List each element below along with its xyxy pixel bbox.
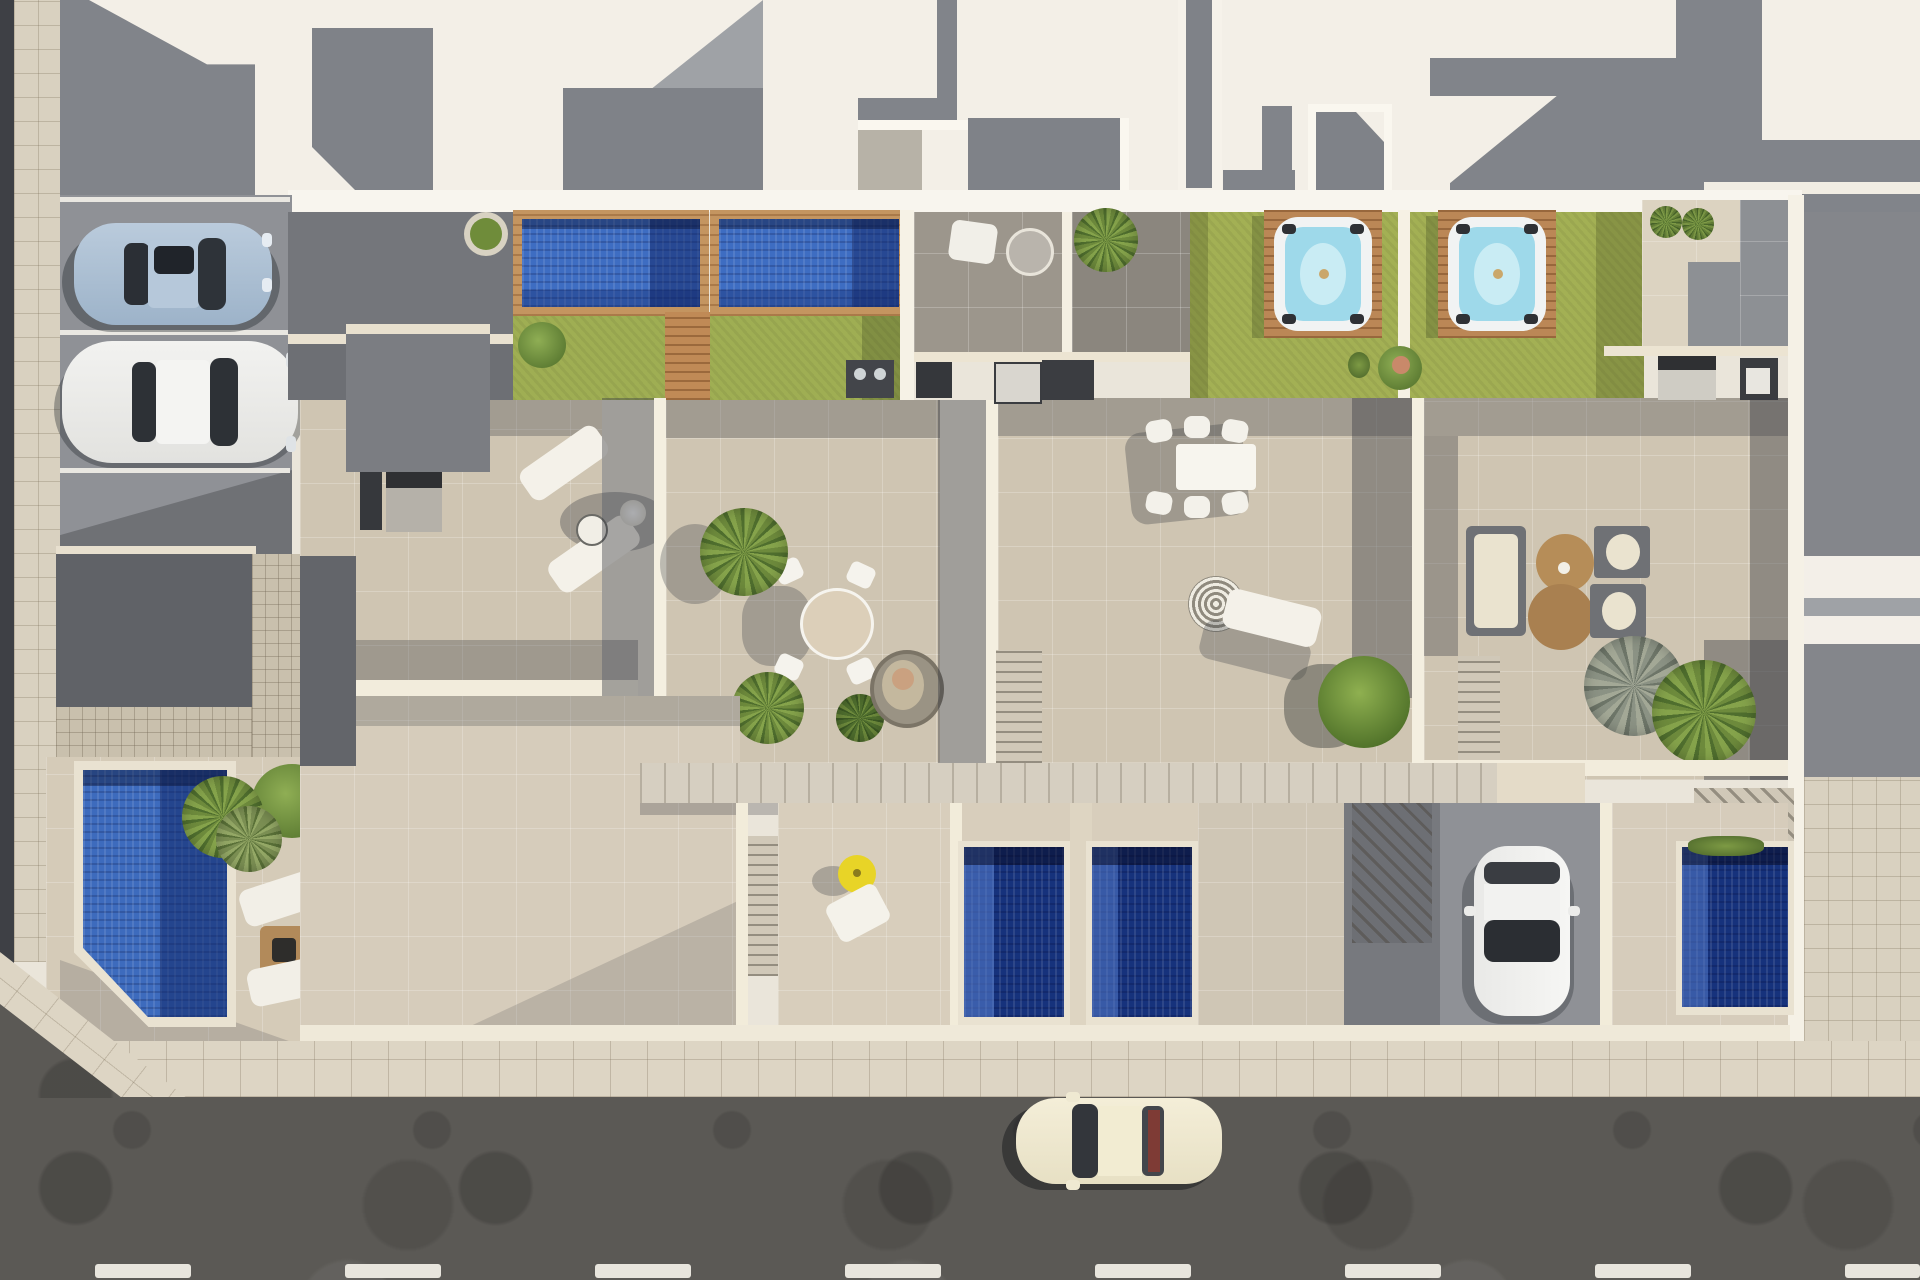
u3-chair-3 — [1220, 418, 1249, 444]
roof-pool-1-deep-2 — [522, 290, 700, 307]
shadow-u4-left — [1424, 436, 1458, 656]
building-north-wall — [288, 190, 1802, 212]
car-blue-windshield — [198, 238, 226, 310]
roof-pool-2-deep-2 — [719, 290, 899, 307]
car-road-roof — [1098, 1106, 1142, 1176]
shadow-u3-east — [1352, 398, 1414, 698]
street-edge-left — [0, 0, 14, 980]
wall-u3-mid — [1062, 212, 1072, 362]
egg-chair-person — [892, 668, 914, 690]
lane-dash-7 — [1595, 1264, 1691, 1278]
u3-round-daybed — [1006, 228, 1054, 276]
car-drive-mirror-2 — [1568, 906, 1580, 916]
u3-plant — [1318, 656, 1410, 748]
u3-kitchen-counter-white — [994, 362, 1042, 404]
car-white-roof — [156, 360, 210, 444]
u4-court-step-shadow — [1688, 262, 1740, 350]
u3-lawn-shadow — [1190, 212, 1208, 400]
u1-lawn-bush — [518, 322, 566, 368]
pool-3-edge-shadow — [1092, 847, 1192, 865]
cobble-path-h — [56, 707, 254, 759]
u1-planter-green — [470, 218, 502, 250]
sidewalk-bottom — [92, 1041, 1920, 1097]
car-drive-windshield — [1484, 920, 1560, 962]
coffee-cup — [1558, 562, 1570, 574]
lane-dash-5 — [1095, 1264, 1191, 1278]
u2-sink-bowl-1 — [854, 368, 866, 380]
hot-tub-2-headrest-2 — [1524, 224, 1538, 234]
car-white-windshield — [210, 358, 238, 446]
armchair-1-cushion — [1606, 534, 1640, 570]
u1-kitchen-cabinet — [360, 472, 382, 530]
top-passage-vert — [1186, 0, 1212, 188]
u4-kitchen-cabinet-door — [1746, 368, 1770, 394]
pool-4-plants — [1688, 836, 1764, 856]
car-road-rear-stripe — [1148, 1110, 1160, 1172]
car-road-mirror-1 — [1066, 1092, 1080, 1102]
parking-line-1 — [60, 197, 290, 202]
top-gray-vert-right — [1676, 0, 1704, 58]
patio-u3 — [1198, 803, 1344, 1045]
wall-p12 — [736, 803, 748, 1045]
top-gray-band-3 — [858, 98, 957, 122]
top-gray-band-right — [1430, 58, 1704, 96]
u3-chair-2 — [1184, 416, 1210, 438]
stairs-wood-u12 — [665, 312, 713, 400]
hot-tub-1-headrest-4 — [1350, 314, 1364, 324]
lane-dash-3 — [595, 1264, 691, 1278]
wall-p4 — [1600, 803, 1612, 1045]
car-blue-sunroof — [154, 246, 194, 274]
garage-roof — [56, 554, 254, 707]
lane-dash-1 — [95, 1264, 191, 1278]
u1-kitchen-grill-top — [386, 472, 442, 488]
car-road-mirror-2 — [1066, 1180, 1080, 1190]
pool-3-light-edge — [1092, 847, 1118, 1017]
u3-chair-4 — [1144, 490, 1173, 516]
hot-tub-2-headrest-1 — [1456, 224, 1470, 234]
top-house-shadow-r2 — [1262, 106, 1292, 195]
pool-2-edge-shadow — [964, 847, 1064, 865]
palm-u2-big — [700, 508, 788, 596]
u4-lawn-shadow — [1596, 212, 1644, 400]
palm-corner-2 — [216, 806, 282, 872]
hot-tub-1-headrest-3 — [1282, 314, 1296, 324]
stairs-p2 — [748, 836, 778, 976]
u4-court-gray — [1740, 200, 1790, 350]
wall-u34 — [1412, 398, 1424, 763]
yellow-table-stem — [853, 869, 861, 877]
boardwalk — [640, 763, 1500, 803]
u2-kitchen-sink — [846, 360, 894, 398]
car-drive-roof — [1484, 884, 1560, 920]
east-sidewalk — [1804, 777, 1920, 1045]
car-white-rear-window — [132, 362, 156, 442]
u1-roof-slab — [346, 334, 490, 472]
top-right-house — [1762, 0, 1920, 140]
sofa-cushions — [1474, 534, 1518, 628]
lane-dash-4 — [845, 1264, 941, 1278]
coffee-table-2 — [1528, 584, 1594, 650]
hot-tub-2-headrest-4 — [1524, 314, 1538, 324]
shadow-u12 — [602, 398, 656, 698]
u4-terrace-shadow-top — [1424, 398, 1790, 436]
lane-dash-6 — [1345, 1264, 1441, 1278]
top-courtyard-3b — [968, 118, 1120, 195]
u2-dining-table — [800, 588, 874, 660]
car-drive-mirror-1 — [1464, 906, 1476, 916]
u3-chair-5 — [1184, 496, 1210, 518]
top-wall-3b — [1120, 118, 1129, 195]
roof-pool-1-shadow — [522, 219, 700, 229]
top-wall-3 — [858, 120, 970, 130]
stair-landing-right — [1497, 763, 1585, 805]
patio-u1-shadow-top — [300, 696, 740, 726]
roof-pool-2-shadow — [719, 219, 899, 229]
pool-4-light-edge — [1682, 847, 1708, 1007]
car-blue-headlight-2 — [262, 278, 272, 292]
u4-roof-wall-line — [1604, 346, 1790, 356]
car-white-headlight-2 — [286, 436, 296, 452]
mini-palm-2 — [1682, 208, 1714, 240]
palm-u4-green — [1652, 660, 1756, 764]
u3-kitchen-counter-dark — [1042, 360, 1094, 400]
palm-u2-mid — [732, 672, 804, 744]
pool-2-light-edge — [964, 847, 994, 1017]
u2-sink-bowl-2 — [874, 368, 886, 380]
u2-terrace-shadow-top — [666, 400, 940, 438]
stairs-u3-down — [996, 650, 1042, 763]
rose-bloom — [1392, 356, 1410, 374]
lane-dash-2 — [345, 1264, 441, 1278]
car-blue-rear-window — [124, 243, 150, 305]
hot-tub-1-headrest-2 — [1350, 224, 1364, 234]
dark-band-stairs — [1352, 803, 1432, 943]
top-courtyard-3a — [858, 130, 922, 195]
stairs-u4-down — [1458, 656, 1500, 763]
car-drive-rear-glass — [1484, 862, 1560, 884]
u4-kitchen-grill-top — [1658, 356, 1716, 370]
car-blue-headlight-1 — [262, 233, 272, 247]
east-house-band — [1804, 598, 1920, 616]
hot-tub-2-headrest-3 — [1456, 314, 1470, 324]
u3-kitchen-grill-1 — [916, 356, 952, 398]
car-road-windshield — [1072, 1104, 1098, 1178]
u3-dining-table — [1176, 444, 1256, 490]
wall-u2-east — [900, 210, 914, 402]
east-gray-area — [1802, 212, 1920, 777]
u3-palm-top — [1074, 208, 1138, 272]
parking-line-3 — [60, 468, 290, 473]
aerial-architectural-render — [0, 0, 1920, 1280]
hot-tub-1-jet — [1319, 269, 1329, 279]
armchair-2-cushion — [1602, 592, 1636, 630]
hot-tub-2-jet — [1493, 269, 1503, 279]
top-courtyard-2 — [563, 88, 763, 195]
passage-shadow-u1-west — [300, 556, 356, 766]
hot-tub-1-headrest-1 — [1282, 224, 1296, 234]
mini-palm-1 — [1650, 206, 1682, 238]
u3-lounge-chair — [947, 219, 998, 265]
shadow-u23 — [938, 400, 988, 763]
lawn-sprig — [1348, 352, 1370, 378]
road — [0, 1097, 1920, 1280]
fire-pit-center — [272, 938, 296, 962]
lane-dash-8 — [1845, 1264, 1920, 1278]
